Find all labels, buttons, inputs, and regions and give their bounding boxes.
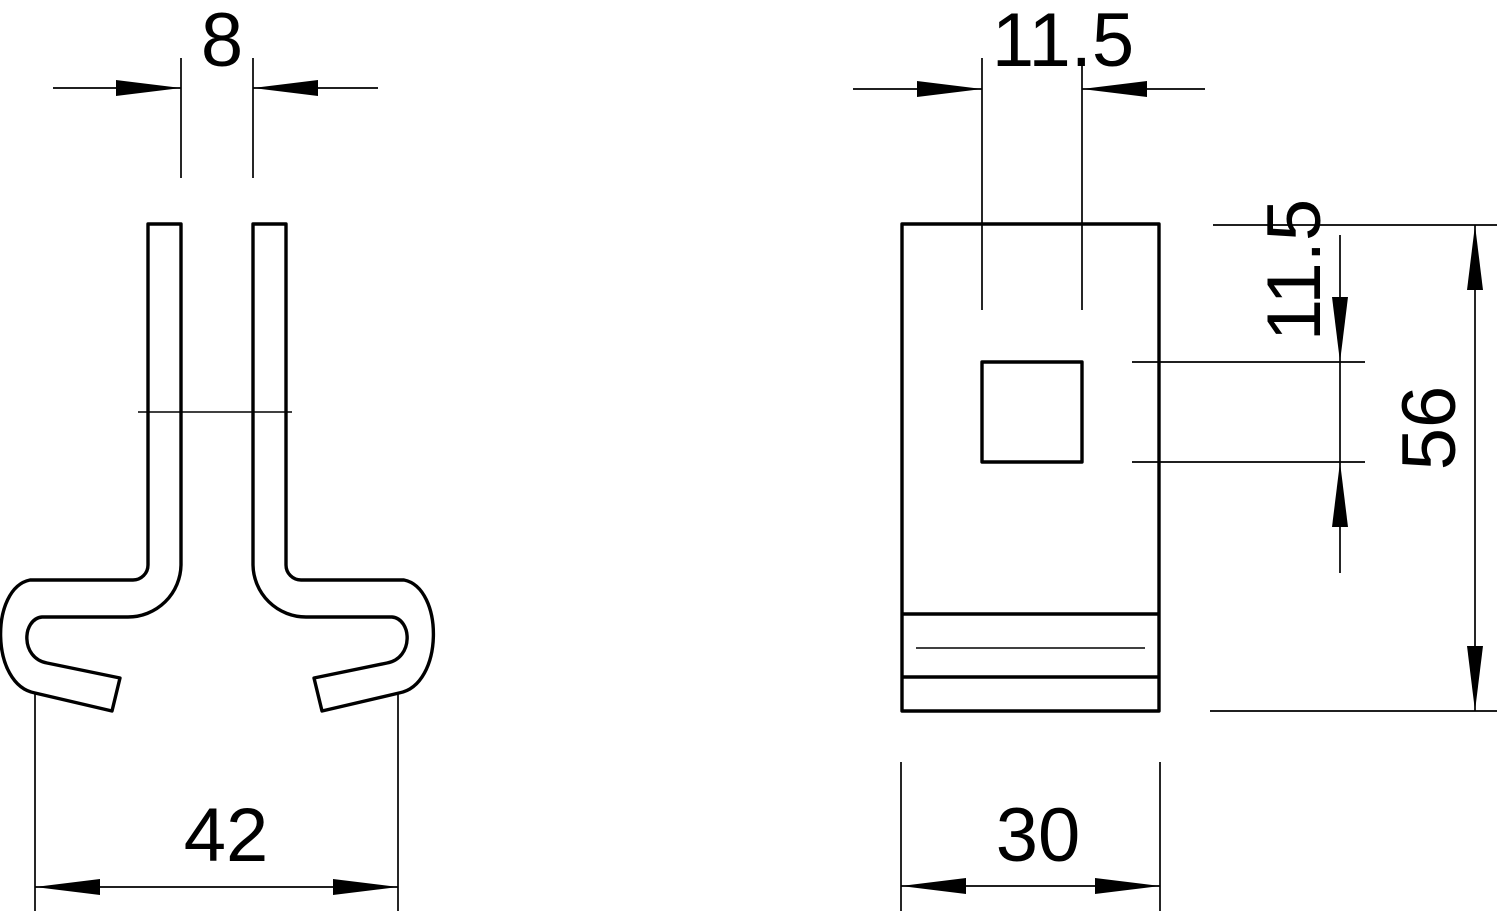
technical-drawing: 8 42 xyxy=(0,0,1500,913)
front-view: 11.5 11.5 56 xyxy=(853,0,1497,911)
arrowhead-down-pointing xyxy=(1467,646,1483,711)
front-body-outline xyxy=(902,224,1159,711)
dim-front-overall-width: 30 xyxy=(901,762,1160,911)
arrowhead-right-pointing xyxy=(116,80,181,96)
arrowhead-right-pointing xyxy=(917,81,982,97)
arrowhead-left-pointing xyxy=(1082,81,1147,97)
profile-view: 8 42 xyxy=(1,0,434,911)
dim-label-overall-width: 42 xyxy=(184,793,269,878)
dim-slot-width: 8 xyxy=(53,0,378,178)
arrowhead-left-pointing xyxy=(901,878,966,894)
dim-label-slot-width: 8 xyxy=(201,0,243,83)
dim-label-overall-height: 56 xyxy=(1387,386,1472,471)
profile-right-leg-outline xyxy=(253,224,433,711)
arrowhead-up-pointing xyxy=(1332,462,1348,527)
profile-left-leg-outline xyxy=(1,224,181,711)
dim-label-hole-height: 11.5 xyxy=(1252,199,1337,341)
arrowhead-right-pointing xyxy=(1095,878,1160,894)
dim-hole-width: 11.5 xyxy=(853,0,1205,310)
drawing-canvas: 8 42 xyxy=(0,0,1500,913)
front-square-hole xyxy=(982,362,1082,462)
dim-profile-overall-width: 42 xyxy=(35,692,398,911)
arrowhead-right-pointing xyxy=(333,879,398,895)
arrowhead-up-pointing xyxy=(1467,225,1483,290)
dim-label-front-overall-width: 30 xyxy=(996,793,1081,878)
dim-hole-height: 11.5 xyxy=(1132,199,1365,573)
arrowhead-left-pointing xyxy=(35,879,100,895)
dim-label-hole-width: 11.5 xyxy=(992,0,1134,83)
arrowhead-left-pointing xyxy=(253,80,318,96)
